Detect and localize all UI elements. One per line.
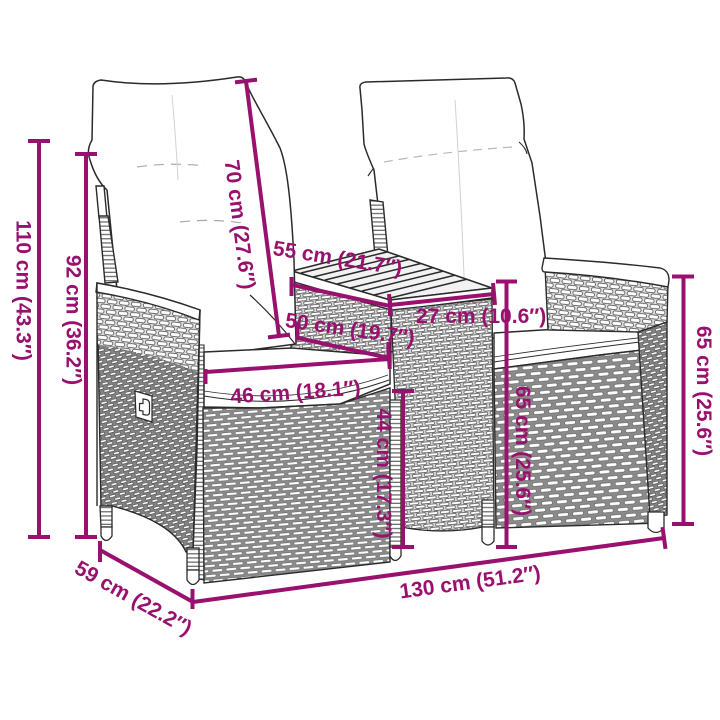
svg-text:65 cm (25.6″): 65 cm (25.6″) xyxy=(511,386,534,516)
svg-text:92 cm (36.2″): 92 cm (36.2″) xyxy=(62,255,85,385)
svg-text:65 cm (25.6″): 65 cm (25.6″) xyxy=(692,326,715,456)
svg-text:110 cm (43.3″): 110 cm (43.3″) xyxy=(12,220,35,361)
svg-text:44 cm (17.3″): 44 cm (17.3″) xyxy=(372,408,395,538)
svg-text:27 cm (10.6″): 27 cm (10.6″) xyxy=(416,305,546,328)
